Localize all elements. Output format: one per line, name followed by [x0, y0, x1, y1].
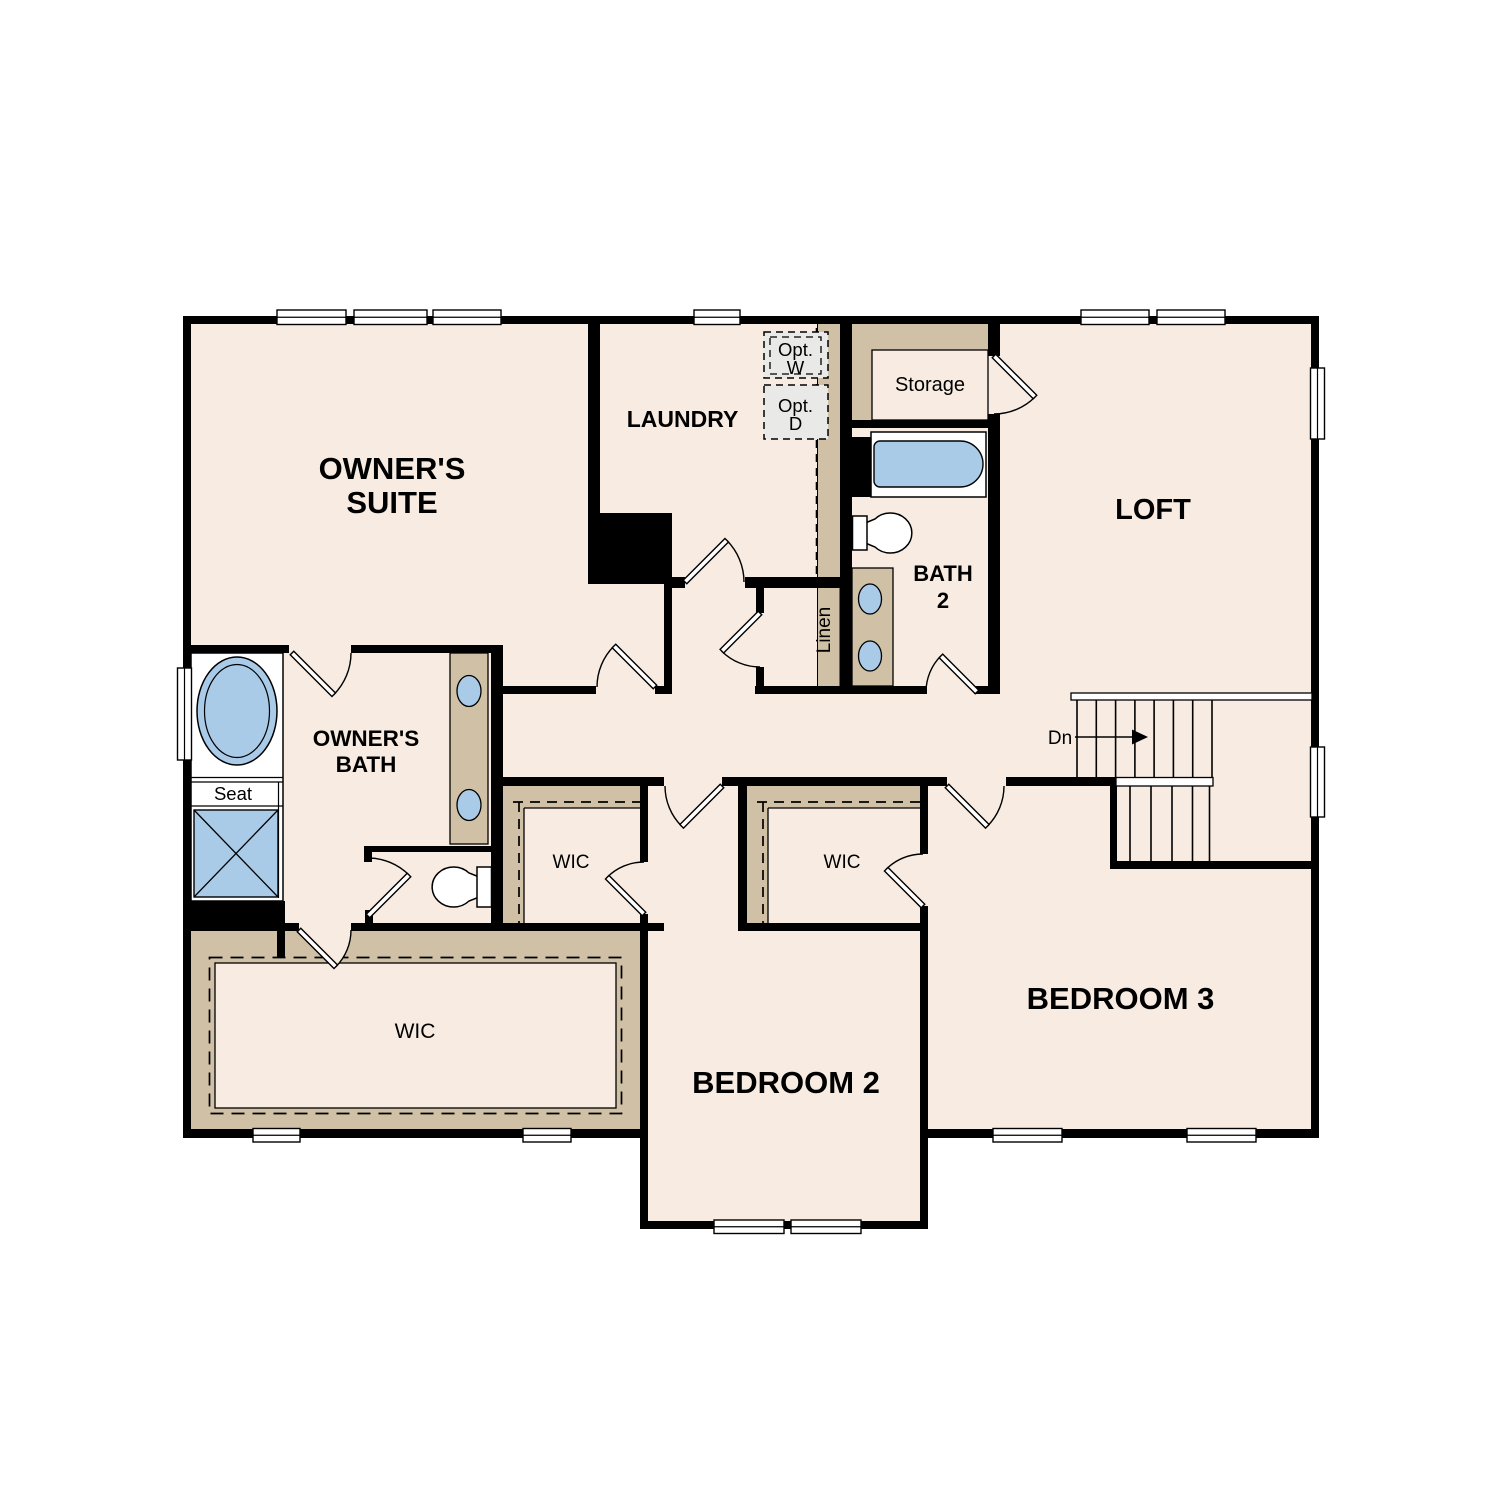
svg-text:BEDROOM 2: BEDROOM 2 [692, 1065, 880, 1100]
svg-text:OWNER'S: OWNER'S [313, 726, 420, 751]
svg-text:LOFT: LOFT [1115, 494, 1191, 526]
svg-text:WIC: WIC [395, 1020, 436, 1043]
svg-text:BEDROOM 3: BEDROOM 3 [1027, 981, 1215, 1016]
svg-text:Storage: Storage [895, 374, 965, 396]
svg-text:WIC: WIC [824, 852, 861, 873]
svg-text:SUITE: SUITE [346, 485, 437, 520]
svg-text:D: D [789, 413, 802, 434]
svg-text:Dn: Dn [1048, 728, 1072, 749]
svg-text:2: 2 [937, 588, 949, 613]
svg-text:BATH: BATH [913, 561, 972, 586]
svg-text:LAUNDRY: LAUNDRY [627, 406, 739, 432]
svg-text:W: W [787, 357, 805, 378]
svg-text:Seat: Seat [214, 783, 252, 804]
svg-text:WIC: WIC [553, 852, 590, 873]
svg-text:BATH: BATH [336, 752, 397, 777]
svg-text:OWNER'S: OWNER'S [319, 451, 466, 486]
svg-text:Linen: Linen [814, 607, 835, 654]
